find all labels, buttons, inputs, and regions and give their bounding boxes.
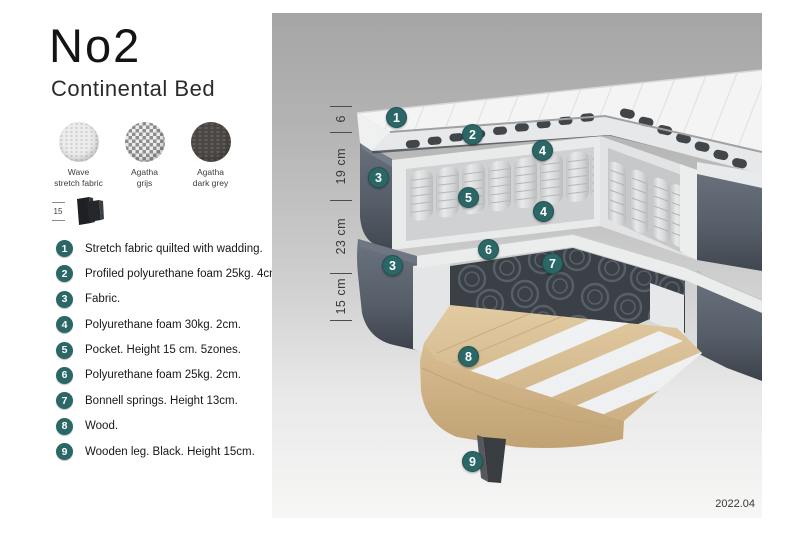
callout-6-foam-rim: 6 <box>478 239 499 260</box>
legend-item: 2 Profiled polyurethane foam 25kg. 4cm. <box>56 265 282 282</box>
legend-text: Bonnell springs. Height 13cm. <box>85 395 238 407</box>
legend-text: Wood. <box>85 420 118 432</box>
bed-leg-icon <box>70 194 108 228</box>
legend-item: 4 Polyurethane foam 30kg. 2cm. <box>56 316 282 333</box>
page: No2 Continental Bed Wave stretch fabric … <box>0 0 800 533</box>
legend-number-badge: 7 <box>56 392 73 409</box>
swatch-label: Agatha <box>118 167 171 178</box>
legend-item: 6 Polyurethane foam 25kg. 2cm. <box>56 367 282 384</box>
swatch-agatha-grijs: Agatha grijs <box>118 122 171 188</box>
fabric-sample-icon <box>191 122 231 162</box>
legend-number-badge: 2 <box>56 265 73 282</box>
legend-number-badge: 4 <box>56 316 73 333</box>
legend-text: Stretch fabric quilted with wadding. <box>85 243 263 255</box>
legend-item: 5 Pocket. Height 15 cm. 5zones. <box>56 342 282 359</box>
leg-height-spec: 15 <box>50 194 108 228</box>
legend-number-badge: 1 <box>56 240 73 257</box>
callout-4-foam-bottom: 4 <box>533 201 554 222</box>
legend-item: 7 Bonnell springs. Height 13cm. <box>56 392 282 409</box>
fabric-sample-icon <box>59 122 99 162</box>
swatch-label: grijs <box>118 178 171 189</box>
callout-2-profiled-foam: 2 <box>462 124 483 145</box>
legend-item: 9 Wooden leg. Black. Height 15cm. <box>56 443 282 460</box>
swatch-wave-stretch: Wave stretch fabric <box>52 122 105 188</box>
page-subtitle: Continental Bed <box>51 76 215 102</box>
callout-8-wood: 8 <box>458 346 479 367</box>
callout-3-fabric-upper: 3 <box>368 167 389 188</box>
legend-item: 3 Fabric. <box>56 291 282 308</box>
legend-text: Fabric. <box>85 293 120 305</box>
measurement-topper: 6 <box>328 106 354 132</box>
callout-3-fabric-lower: 3 <box>382 255 403 276</box>
leg-height-ruler: 15 <box>50 202 66 221</box>
legend-number-badge: 8 <box>56 418 73 435</box>
ruler-tick <box>330 320 352 321</box>
legend-item: 1 Stretch fabric quilted with wadding. <box>56 240 282 257</box>
legend-item: 8 Wood. <box>56 418 282 435</box>
legend-text: Wooden leg. Black. Height 15cm. <box>85 446 255 458</box>
legend-text: Profiled polyurethane foam 25kg. 4cm. <box>85 268 282 280</box>
callout-4-foam-top: 4 <box>532 140 553 161</box>
fabric-sample-icon <box>125 122 165 162</box>
legend-number-badge: 9 <box>56 443 73 460</box>
version-label: 2022.04 <box>715 498 755 510</box>
swatch-agatha-dark-grey: Agatha dark grey <box>184 122 237 188</box>
callout-7-bonnell-springs: 7 <box>542 253 563 274</box>
callout-9-wooden-leg: 9 <box>462 451 483 472</box>
fabric-swatches: Wave stretch fabric Agatha grijs Agatha … <box>52 122 237 188</box>
legend-number-badge: 6 <box>56 367 73 384</box>
measurement-mattress: 19 cm <box>328 132 354 200</box>
leg-height-value: 15 <box>54 203 63 220</box>
legend-text: Pocket. Height 15 cm. 5zones. <box>85 344 241 356</box>
measurement-box: 23 cm <box>328 200 354 273</box>
swatch-label: Wave <box>52 167 105 178</box>
legend-number-badge: 3 <box>56 291 73 308</box>
legend-text: Polyurethane foam 30kg. 2cm. <box>85 319 241 331</box>
callout-5-pocket-springs: 5 <box>458 187 479 208</box>
legend-text: Polyurethane foam 25kg. 2cm. <box>85 369 241 381</box>
ruler-tick <box>52 220 65 221</box>
swatch-label: stretch fabric <box>52 178 105 189</box>
info-panel: No2 Continental Bed Wave stretch fabric … <box>0 0 272 533</box>
bed-cutaway-render: 6 19 cm 23 cm 15 cm 1 2 4 3 5 4 6 7 3 8 … <box>272 13 762 518</box>
measurement-leg: 15 cm <box>328 273 354 320</box>
legend-number-badge: 5 <box>56 342 73 359</box>
callout-1-stretch-fabric: 1 <box>386 107 407 128</box>
swatch-label: dark grey <box>184 178 237 189</box>
swatch-label: Agatha <box>184 167 237 178</box>
component-legend: 1 Stretch fabric quilted with wadding. 2… <box>56 240 282 469</box>
page-title: No2 <box>49 18 141 73</box>
